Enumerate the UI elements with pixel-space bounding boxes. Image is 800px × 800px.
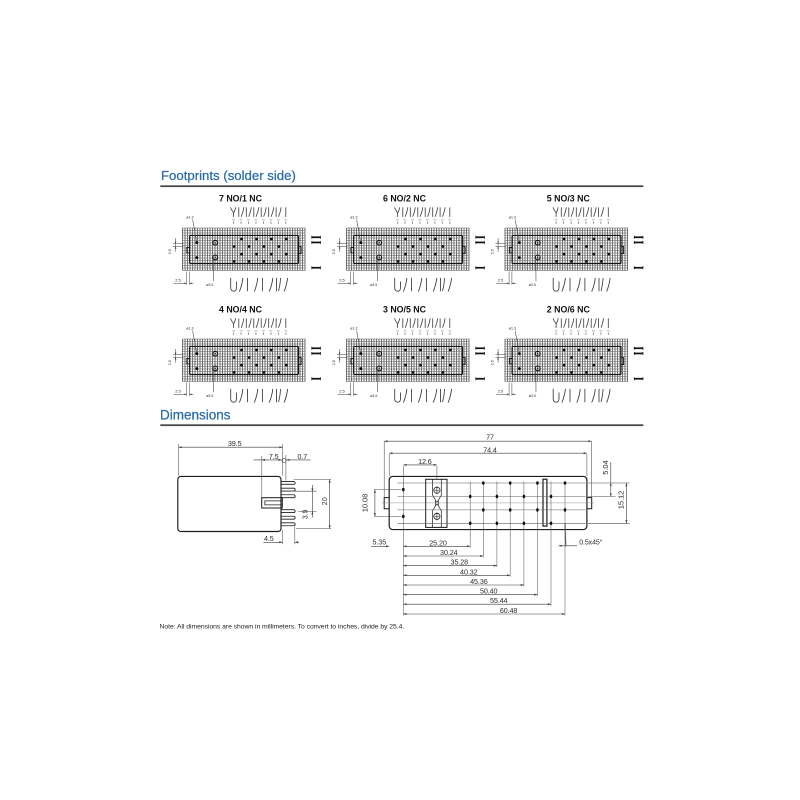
svg-text:6 NO/2 NC: 6 NO/2 NC [383, 193, 427, 203]
svg-text:2.5: 2.5 [489, 359, 494, 365]
svg-text:2.5: 2.5 [489, 248, 494, 254]
svg-text:40.32: 40.32 [460, 567, 478, 576]
svg-text:2.5: 2.5 [339, 388, 345, 393]
svg-text:45.36: 45.36 [470, 577, 488, 586]
svg-text:50.40: 50.40 [480, 587, 498, 596]
svg-text:ø1.3: ø1.3 [186, 326, 193, 330]
svg-text:7.5: 7.5 [269, 452, 279, 461]
svg-text:4.5: 4.5 [264, 534, 274, 543]
svg-text:Dimensions: Dimensions [160, 407, 231, 422]
svg-text:20: 20 [320, 497, 329, 505]
svg-text:ø1.3: ø1.3 [509, 215, 516, 219]
svg-text:ø3.5: ø3.5 [206, 283, 213, 287]
svg-text:2.5: 2.5 [167, 359, 172, 365]
svg-text:0.5x45°: 0.5x45° [579, 539, 602, 547]
svg-text:Footprints (solder side): Footprints (solder side) [161, 168, 296, 183]
svg-text:Note: All dimensions are shown: Note: All dimensions are shown in millim… [160, 624, 405, 631]
svg-text:ø3.5: ø3.5 [370, 283, 377, 287]
svg-text:5.04: 5.04 [601, 460, 610, 474]
svg-text:35.28: 35.28 [451, 558, 469, 567]
svg-text:2.5: 2.5 [167, 248, 172, 254]
svg-text:12.6: 12.6 [418, 457, 432, 466]
svg-text:ø1.3: ø1.3 [509, 326, 516, 330]
svg-text:ø1.3: ø1.3 [350, 326, 357, 330]
svg-text:3.9: 3.9 [301, 509, 310, 519]
svg-text:ø3.5: ø3.5 [529, 394, 536, 398]
svg-text:3 NO/5 NC: 3 NO/5 NC [383, 304, 427, 314]
svg-text:ø3.5: ø3.5 [529, 283, 536, 287]
svg-text:0.7: 0.7 [297, 452, 307, 461]
svg-text:77: 77 [486, 433, 494, 442]
svg-text:2.5: 2.5 [498, 277, 504, 282]
svg-text:2.5: 2.5 [175, 388, 181, 393]
svg-text:5.35: 5.35 [373, 538, 387, 547]
svg-text:2 NO/6 NC: 2 NO/6 NC [547, 304, 591, 314]
svg-text:2.5: 2.5 [331, 359, 336, 365]
svg-text:10.08: 10.08 [361, 494, 370, 513]
svg-text:2.5: 2.5 [339, 277, 345, 282]
svg-text:ø3.5: ø3.5 [206, 394, 213, 398]
svg-text:ø3.5: ø3.5 [370, 394, 377, 398]
svg-text:ø1.3: ø1.3 [186, 215, 193, 219]
svg-text:4 NO/4 NC: 4 NO/4 NC [219, 304, 263, 314]
svg-text:15.12: 15.12 [617, 491, 626, 510]
svg-text:39.5: 39.5 [228, 439, 242, 448]
svg-text:ø1.3: ø1.3 [350, 215, 357, 219]
svg-text:25.20: 25.20 [429, 538, 447, 547]
svg-text:60.48: 60.48 [500, 606, 518, 615]
svg-text:5 NO/3 NC: 5 NO/3 NC [547, 193, 591, 203]
svg-text:2.5: 2.5 [331, 248, 336, 254]
svg-text:55.44: 55.44 [490, 596, 508, 605]
svg-text:7 NO/1 NC: 7 NO/1 NC [219, 193, 263, 203]
svg-text:30.24: 30.24 [440, 548, 458, 557]
svg-text:74.4: 74.4 [483, 445, 497, 454]
svg-text:2.5: 2.5 [498, 388, 504, 393]
svg-text:2.5: 2.5 [175, 277, 181, 282]
